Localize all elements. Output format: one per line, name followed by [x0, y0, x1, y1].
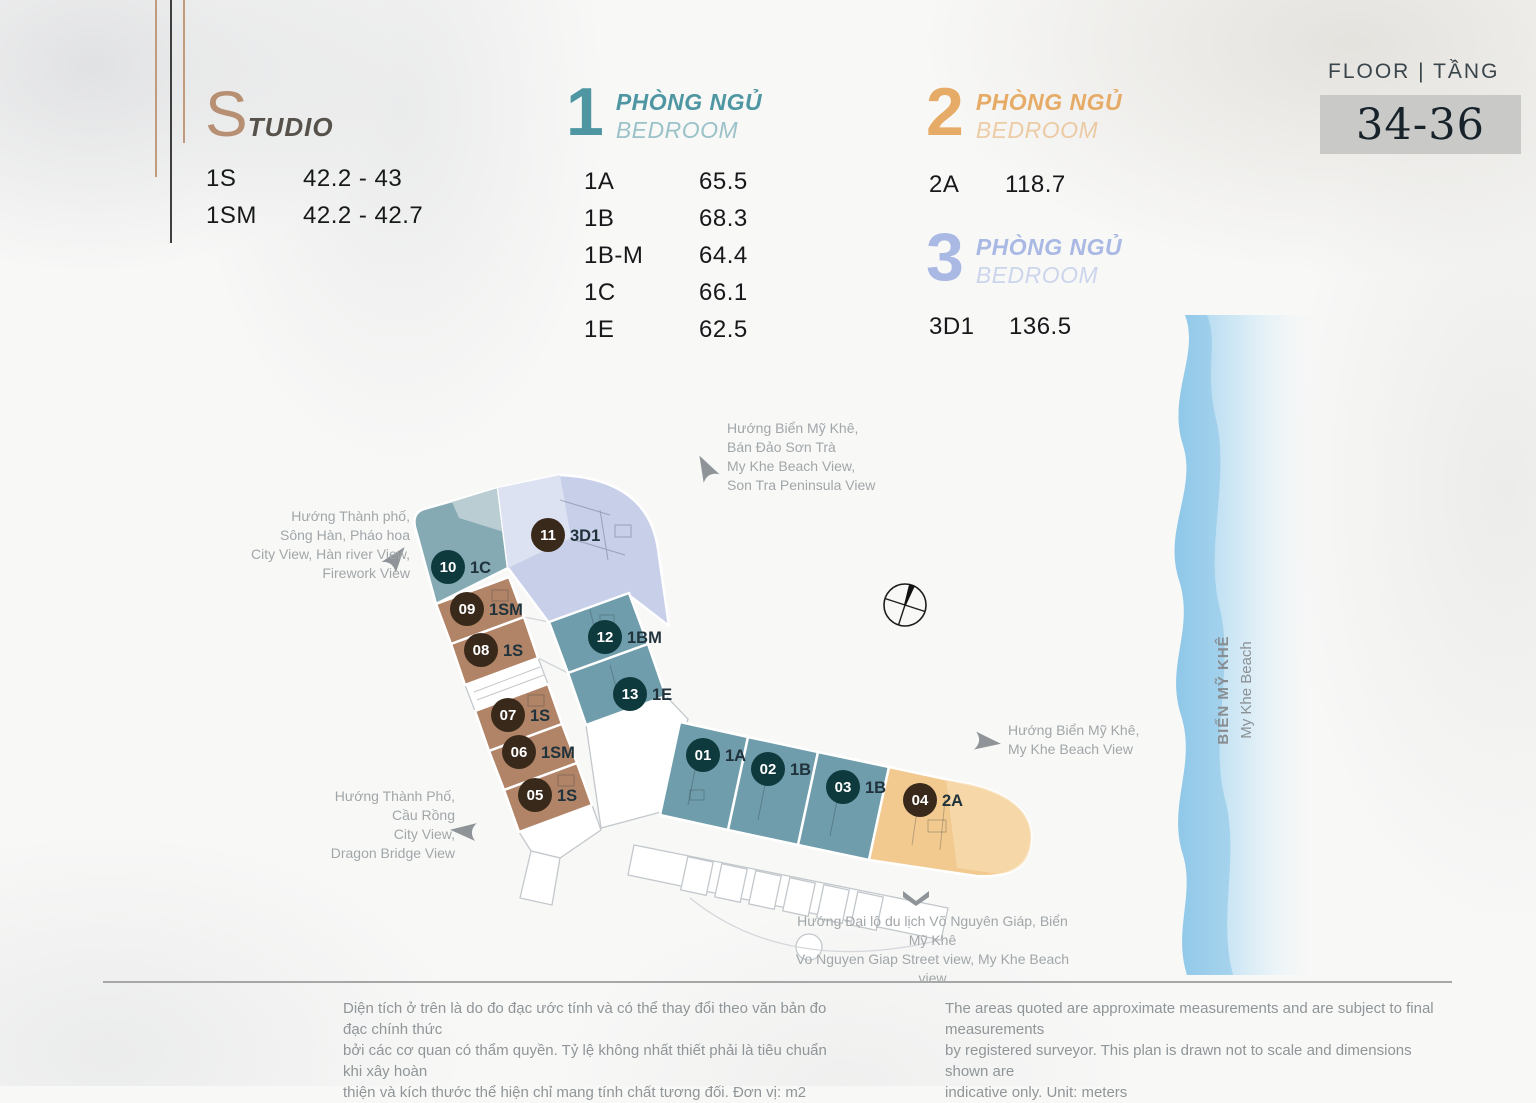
legend-studio-title: STUDIO — [205, 84, 334, 144]
disclaimer-en: The areas quoted are approximate measure… — [945, 998, 1445, 1103]
unit-area: 136.5 — [1009, 313, 1072, 341]
unit-area: 68.3 — [699, 205, 748, 233]
legend-1br-title-vi: PHÒNG NGỦ — [616, 88, 762, 116]
unit-area: 62.5 — [699, 316, 748, 344]
svg-text:1C: 1C — [470, 559, 491, 577]
unit-area: 65.5 — [699, 168, 748, 196]
legend-1br-title: 1 PHÒNG NGỦ BEDROOM — [566, 82, 762, 144]
svg-text:07: 07 — [500, 707, 517, 724]
floor-range-box: 34-36 — [1320, 95, 1521, 154]
legend-3br-title-vi: PHÒNG NGỦ — [976, 233, 1122, 261]
annotation-north: Hướng Biển Mỹ Khê, Bán Đảo Sơn Trà My Kh… — [727, 419, 875, 495]
svg-text:1S: 1S — [503, 642, 523, 660]
svg-text:05: 05 — [527, 787, 544, 804]
legend-2br-title: 2 PHÒNG NGỦ BEDROOM — [926, 82, 1122, 144]
decor-line-tan-2 — [183, 0, 185, 143]
legend-1br-title-en: BEDROOM — [616, 116, 762, 144]
footer-divider — [103, 981, 1452, 983]
annotation-street: Hướng Đại lộ du lịch Võ Nguyên Giáp, Biể… — [790, 912, 1075, 988]
svg-text:12: 12 — [597, 629, 614, 646]
svg-text:3D1: 3D1 — [570, 527, 600, 545]
studio-rest: TUDIO — [248, 112, 334, 142]
svg-text:1S: 1S — [530, 707, 550, 725]
unit-code: 3D1 — [929, 313, 1009, 341]
legend-3br-title-en: BEDROOM — [976, 261, 1122, 289]
svg-text:08: 08 — [473, 642, 490, 659]
unit-code: 1C — [584, 279, 699, 307]
legend-2br-title-vi: PHÒNG NGỦ — [976, 88, 1122, 116]
floor-label: FLOOR | TẦNG — [1328, 60, 1499, 84]
beach-label-vi: BIỂN MỸ KHÊ — [1214, 635, 1232, 744]
svg-text:1A: 1A — [725, 747, 746, 765]
unit-code: 1E — [584, 316, 699, 344]
unit-code: 1B — [584, 205, 699, 233]
studio-initial: S — [205, 78, 248, 150]
svg-text:2A: 2A — [942, 792, 963, 810]
compass-icon — [879, 579, 932, 632]
svg-text:10: 10 — [440, 559, 457, 576]
svg-text:02: 02 — [760, 761, 777, 778]
unit-code: 1B-M — [584, 242, 699, 270]
legend-3br-title: 3 PHÒNG NGỦ BEDROOM — [926, 227, 1122, 289]
legend-1br-rows: 1A65.5 1B68.3 1B-M64.4 1C66.1 1E62.5 — [584, 163, 748, 348]
unit-area: 42.2 - 43 — [303, 165, 402, 193]
svg-text:01: 01 — [695, 747, 712, 764]
floor-range: 34-36 — [1356, 100, 1485, 150]
unit-code: 2A — [929, 171, 1005, 199]
legend-2br-title-en: BEDROOM — [976, 116, 1122, 144]
legend-2br-rows: 2A118.7 — [929, 166, 1066, 203]
decor-line-tan-1 — [155, 0, 157, 177]
legend-3br-rows: 3D1136.5 — [929, 308, 1072, 345]
svg-text:1S: 1S — [557, 787, 577, 805]
svg-text:11: 11 — [540, 527, 556, 544]
annotation-beach: Hướng Biển Mỹ Khê, My Khe Beach View — [1008, 721, 1139, 759]
decor-line-dark — [170, 0, 172, 243]
disclaimer-vi: Diện tích ở trên là do đo đạc ước tính v… — [343, 998, 843, 1103]
svg-text:13: 13 — [622, 686, 639, 703]
beach-label-en: My Khe Beach — [1238, 641, 1255, 739]
unit-area: 118.7 — [1005, 171, 1066, 199]
legend-studio-rows: 1S 42.2 - 43 1SM 42.2 - 42.7 — [206, 160, 423, 234]
unit-code: 1S — [206, 165, 303, 193]
annotation-city: Hướng Thành phố, Sông Hàn, Pháo hoa City… — [235, 507, 410, 583]
unit-area: 64.4 — [699, 242, 748, 270]
unit-code: 1A — [584, 168, 699, 196]
svg-text:1E: 1E — [652, 686, 672, 704]
unit-area: 42.2 - 42.7 — [303, 202, 423, 230]
arrow-north-icon — [691, 451, 719, 482]
annotation-bridge: Hướng Thành Phố, Cầu Rồng City View, Dra… — [330, 787, 455, 863]
legend-3br-number: 3 — [926, 227, 964, 287]
unit-area: 66.1 — [699, 279, 748, 307]
arrow-beach-icon — [974, 732, 1002, 753]
legend-row: 1SM 42.2 - 42.7 — [206, 197, 423, 234]
svg-text:1B: 1B — [790, 761, 811, 779]
unit-code: 1SM — [206, 202, 303, 230]
legend-1br-number: 1 — [566, 82, 604, 142]
svg-text:03: 03 — [835, 779, 852, 796]
svg-text:09: 09 — [459, 601, 476, 618]
legend-2br-number: 2 — [926, 82, 964, 142]
svg-text:1SM: 1SM — [489, 601, 523, 619]
svg-text:06: 06 — [511, 744, 528, 761]
legend-row: 1S 42.2 - 43 — [206, 160, 423, 197]
svg-text:1SM: 1SM — [541, 744, 575, 762]
floor-plan: 011A 021B 031B 042A 051S 061SM 071S 081S… — [380, 420, 1080, 980]
svg-text:1BM: 1BM — [627, 629, 662, 647]
svg-text:04: 04 — [912, 792, 929, 809]
beach-strip: BIỂN MỸ KHÊ My Khe Beach — [1155, 315, 1350, 980]
svg-text:1B: 1B — [865, 779, 886, 797]
